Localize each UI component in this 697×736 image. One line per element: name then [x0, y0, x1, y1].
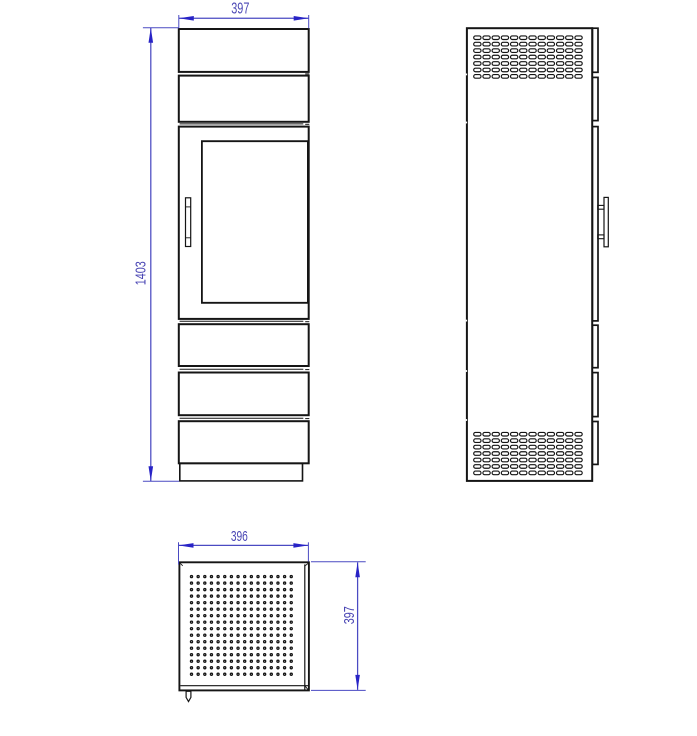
svg-text:396: 396 — [231, 527, 248, 545]
svg-text:397: 397 — [340, 606, 357, 624]
svg-text:397: 397 — [231, 0, 249, 17]
svg-text:1403: 1403 — [132, 261, 149, 285]
